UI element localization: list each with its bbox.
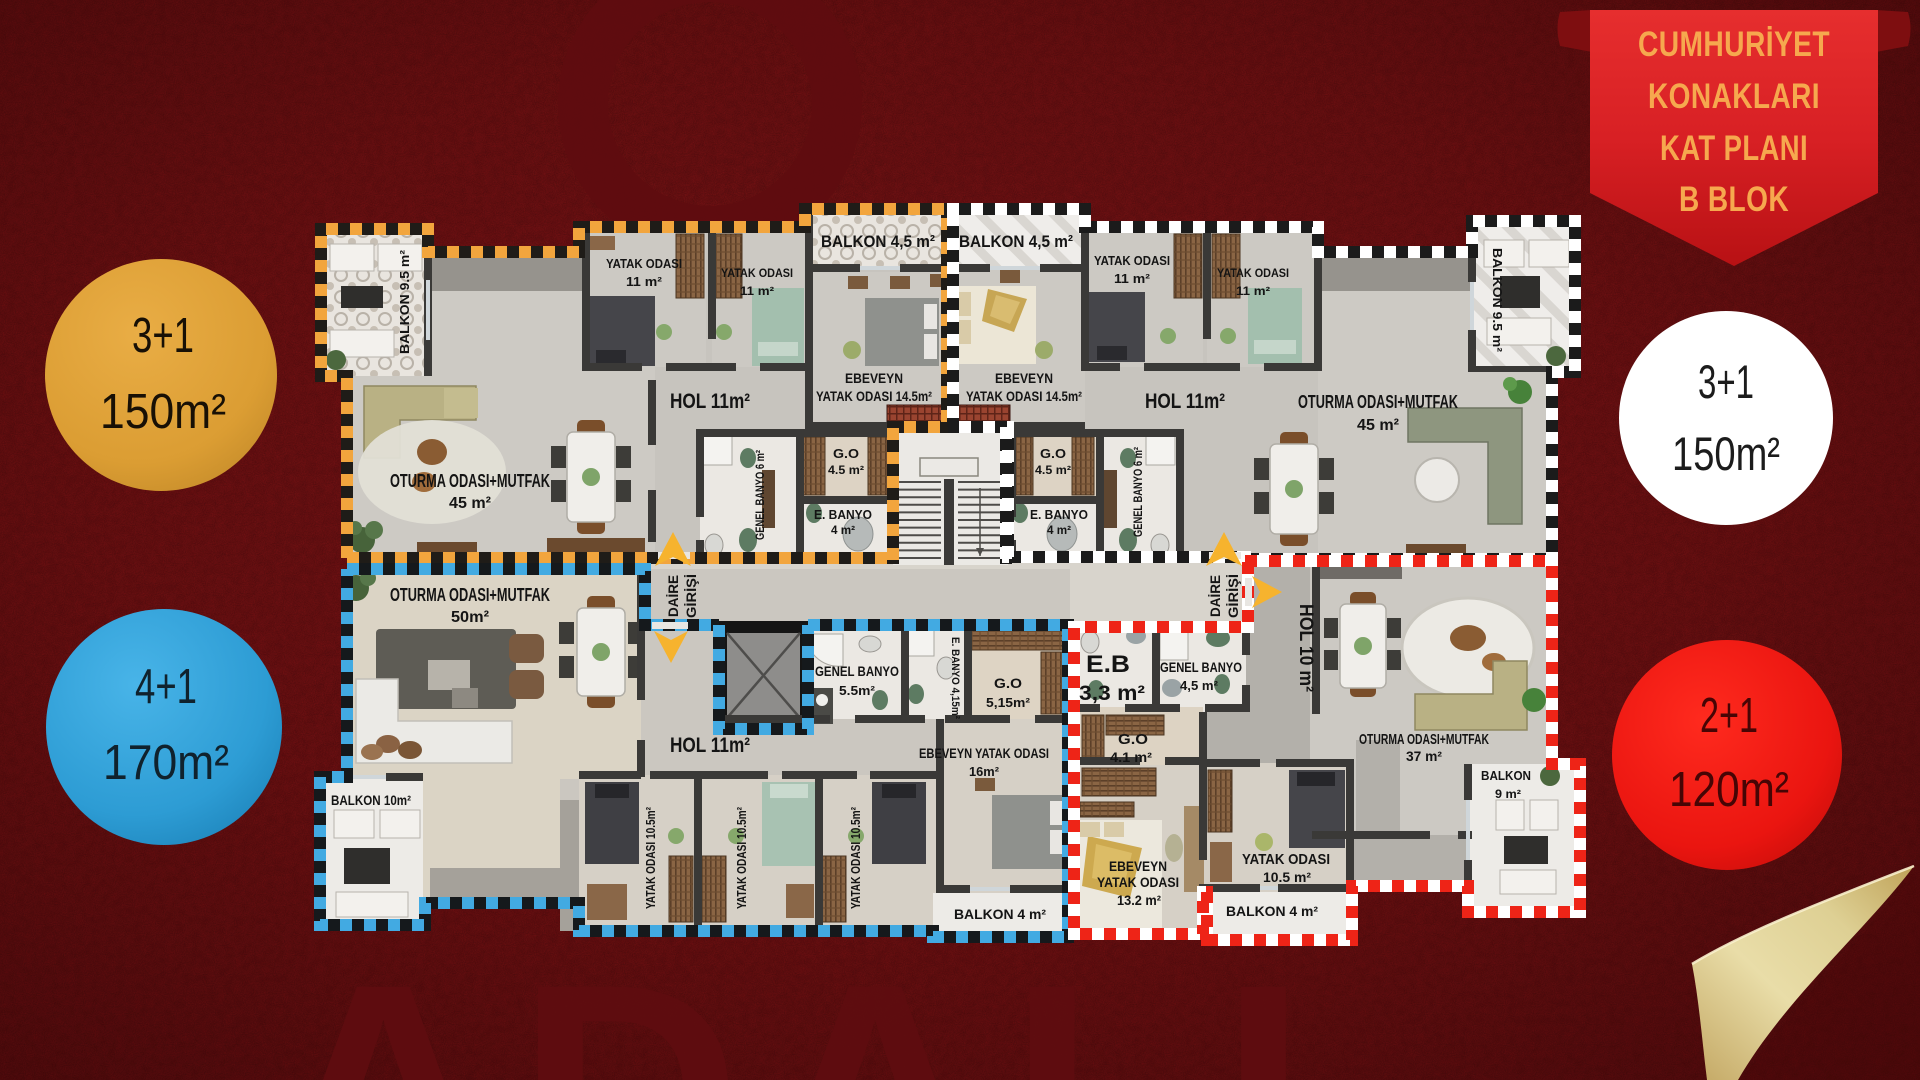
svg-text:G.O: G.O bbox=[1040, 446, 1066, 461]
svg-text:YATAK ODASI 14.5m²: YATAK ODASI 14.5m² bbox=[816, 388, 932, 404]
svg-text:GİRİŞİ: GİRİŞİ bbox=[683, 574, 699, 618]
svg-text:11 m²: 11 m² bbox=[626, 274, 663, 289]
svg-text:KAT PLANI: KAT PLANI bbox=[1660, 129, 1808, 168]
svg-text:YATAK ODASI 10.5m²: YATAK ODASI 10.5m² bbox=[848, 806, 863, 909]
svg-text:5.5m²: 5.5m² bbox=[839, 683, 876, 698]
svg-text:E.B: E.B bbox=[1086, 651, 1130, 678]
svg-text:45 m²: 45 m² bbox=[449, 495, 491, 512]
svg-text:3+1: 3+1 bbox=[1698, 355, 1754, 408]
svg-text:37 m²: 37 m² bbox=[1406, 748, 1442, 764]
svg-text:KONAKLARI: KONAKLARI bbox=[1648, 77, 1820, 116]
svg-text:ADALI: ADALI bbox=[271, 919, 1328, 1080]
svg-text:50m²: 50m² bbox=[451, 609, 489, 626]
svg-text:GENEL BANYO 6 m²: GENEL BANYO 6 m² bbox=[1131, 447, 1145, 537]
svg-text:11 m²: 11 m² bbox=[1114, 271, 1151, 286]
svg-text:YATAK ODASI 10.5m²: YATAK ODASI 10.5m² bbox=[734, 806, 749, 909]
svg-text:E. BANYO: E. BANYO bbox=[814, 507, 872, 522]
svg-text:OTURMA ODASI+MUTFAK: OTURMA ODASI+MUTFAK bbox=[390, 585, 550, 605]
svg-text:16m²: 16m² bbox=[969, 764, 1000, 779]
svg-text:9 m²: 9 m² bbox=[1495, 787, 1521, 801]
svg-text:120m²: 120m² bbox=[1669, 763, 1789, 817]
svg-text:BALKON 9.5 m²: BALKON 9.5 m² bbox=[1490, 248, 1505, 353]
svg-text:YATAK ODASI: YATAK ODASI bbox=[1242, 851, 1330, 868]
svg-text:11 m²: 11 m² bbox=[740, 284, 774, 298]
svg-text:DAİRE: DAİRE bbox=[1207, 575, 1223, 617]
svg-text:45 m²: 45 m² bbox=[1357, 417, 1399, 434]
svg-text:4.5 m²: 4.5 m² bbox=[1035, 463, 1071, 477]
svg-text:G.O: G.O bbox=[994, 675, 1022, 691]
svg-text:BALKON 10m²: BALKON 10m² bbox=[331, 792, 411, 808]
svg-text:BALKON 4 m²: BALKON 4 m² bbox=[954, 906, 1046, 922]
svg-text:13.2 m²: 13.2 m² bbox=[1117, 892, 1161, 908]
svg-text:YATAK ODASI: YATAK ODASI bbox=[1217, 266, 1289, 280]
svg-text:YATAK ODASI: YATAK ODASI bbox=[606, 256, 682, 271]
svg-text:4 m²: 4 m² bbox=[831, 523, 855, 537]
svg-text:BALKON 4,5 m²: BALKON 4,5 m² bbox=[959, 232, 1073, 251]
svg-text:10.5 m²: 10.5 m² bbox=[1263, 869, 1311, 885]
svg-text:EBEVEYN YATAK ODASI: EBEVEYN YATAK ODASI bbox=[919, 745, 1049, 761]
svg-text:YATAK ODASI: YATAK ODASI bbox=[1094, 253, 1170, 268]
svg-text:B BLOK: B BLOK bbox=[1679, 180, 1789, 219]
svg-text:OTURMA ODASI+MUTFAK: OTURMA ODASI+MUTFAK bbox=[1298, 392, 1458, 412]
svg-text:OTURMA ODASI+MUTFAK: OTURMA ODASI+MUTFAK bbox=[390, 471, 550, 491]
svg-text:4+1: 4+1 bbox=[135, 660, 197, 714]
svg-text:E. BANYO: E. BANYO bbox=[1030, 507, 1088, 522]
svg-text:HOL 10 m²: HOL 10 m² bbox=[1295, 604, 1316, 692]
svg-text:4.1 m²: 4.1 m² bbox=[1110, 749, 1152, 765]
svg-text:YATAK ODASI 14.5m²: YATAK ODASI 14.5m² bbox=[966, 388, 1082, 404]
svg-text:150m²: 150m² bbox=[1672, 427, 1780, 480]
svg-text:BALKON: BALKON bbox=[1481, 768, 1531, 783]
svg-text:OTURMA ODASI+MUTFAK: OTURMA ODASI+MUTFAK bbox=[1359, 731, 1489, 748]
svg-text:EBEVEYN: EBEVEYN bbox=[995, 370, 1053, 386]
svg-text:5,15m²: 5,15m² bbox=[986, 695, 1031, 710]
svg-text:GENEL BANYO 6 m²: GENEL BANYO 6 m² bbox=[753, 450, 767, 540]
svg-text:GENEL BANYO: GENEL BANYO bbox=[1160, 659, 1242, 675]
svg-text:DAİRE: DAİRE bbox=[665, 575, 681, 617]
svg-text:HOL 11m²: HOL 11m² bbox=[1145, 390, 1225, 413]
svg-text:E. BANYO 4,15m²: E. BANYO 4,15m² bbox=[949, 637, 961, 719]
svg-text:CUMHURİYET: CUMHURİYET bbox=[1638, 25, 1830, 64]
svg-text:G.O: G.O bbox=[1118, 731, 1148, 748]
svg-text:HOL 11m²: HOL 11m² bbox=[670, 390, 750, 413]
svg-text:4 m²: 4 m² bbox=[1047, 523, 1071, 537]
svg-text:YATAK ODASI: YATAK ODASI bbox=[721, 266, 793, 280]
svg-text:170m²: 170m² bbox=[103, 736, 229, 790]
svg-text:HOL 11m²: HOL 11m² bbox=[670, 734, 750, 757]
svg-text:3+1: 3+1 bbox=[132, 309, 194, 363]
svg-text:YATAK ODASI: YATAK ODASI bbox=[1097, 874, 1179, 890]
svg-text:11 m²: 11 m² bbox=[1236, 284, 1270, 298]
svg-text:BALKON 4 m²: BALKON 4 m² bbox=[1226, 903, 1318, 919]
svg-text:4.5 m²: 4.5 m² bbox=[828, 463, 864, 477]
svg-text:2+1: 2+1 bbox=[1700, 689, 1758, 743]
svg-text:G.O: G.O bbox=[833, 446, 859, 461]
svg-text:4,5 m²: 4,5 m² bbox=[1180, 678, 1219, 693]
svg-text:3,3 m²: 3,3 m² bbox=[1079, 682, 1145, 705]
svg-text:BALKON 9.5 m²: BALKON 9.5 m² bbox=[397, 249, 412, 354]
svg-text:150m²: 150m² bbox=[100, 385, 226, 439]
svg-text:EBEVEYN: EBEVEYN bbox=[845, 370, 903, 386]
svg-text:GENEL BANYO: GENEL BANYO bbox=[815, 663, 899, 679]
svg-text:EBEVEYN: EBEVEYN bbox=[1109, 858, 1167, 874]
svg-text:BALKON 4,5 m²: BALKON 4,5 m² bbox=[821, 232, 935, 251]
svg-text:GİRİŞİ: GİRİŞİ bbox=[1225, 574, 1241, 618]
svg-text:YATAK ODASI 10.5m²: YATAK ODASI 10.5m² bbox=[643, 806, 658, 909]
